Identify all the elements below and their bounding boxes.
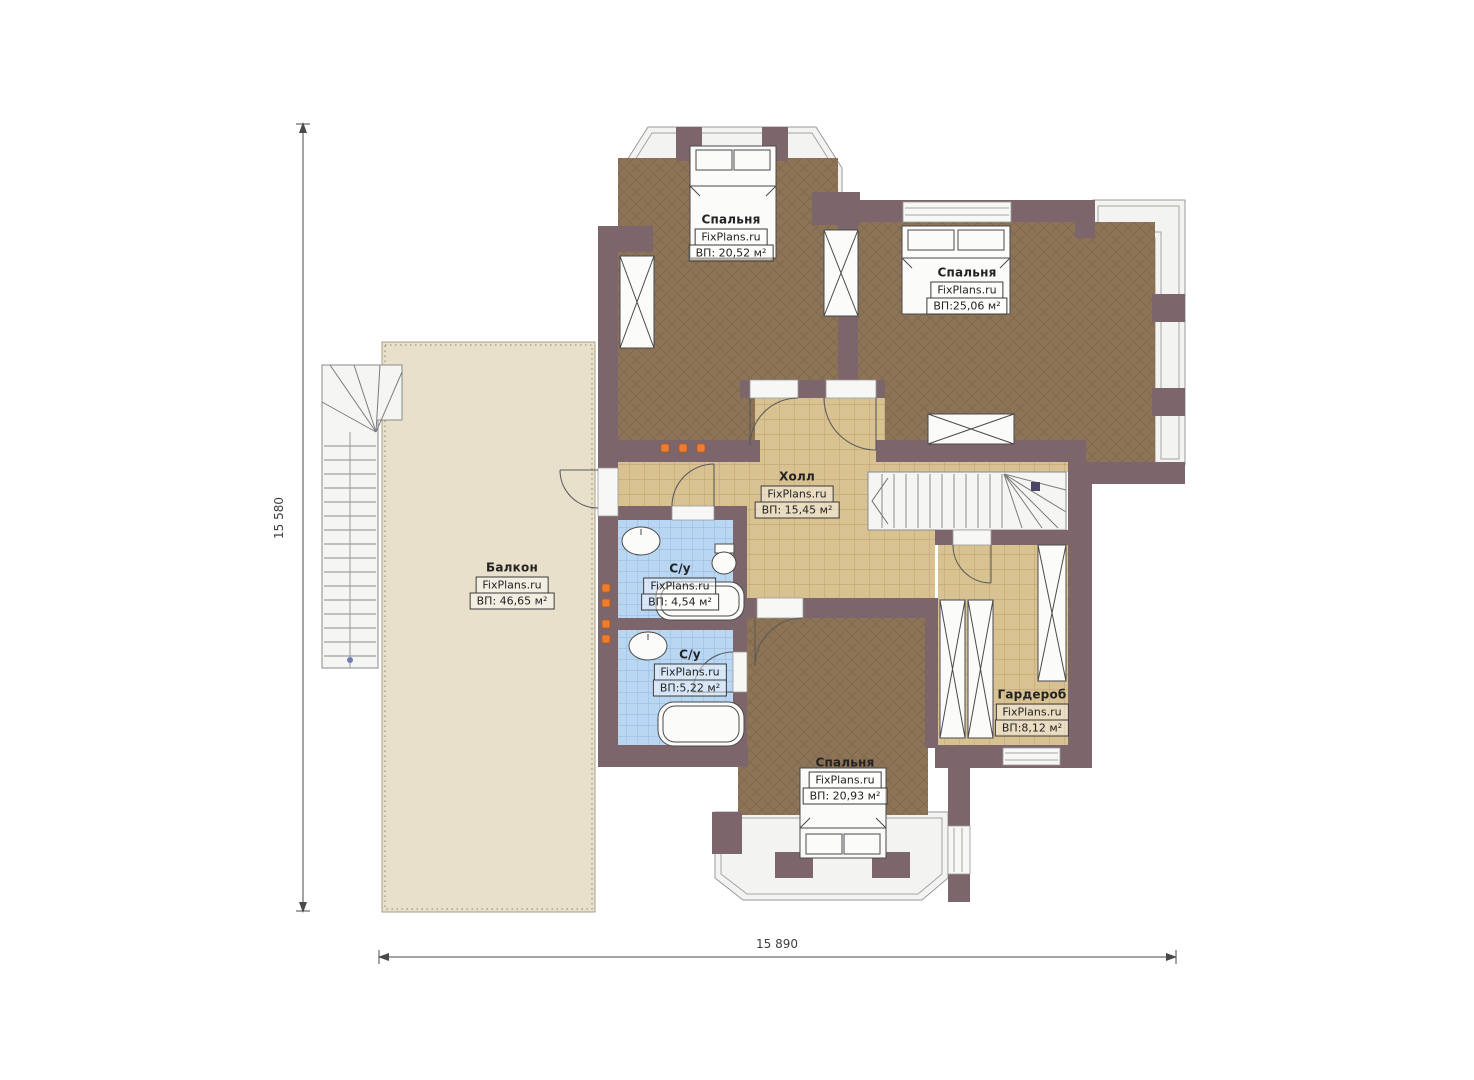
dimension-vertical [296, 122, 310, 913]
closet-wardrobe-left-2 [968, 600, 993, 738]
opening-bedroom1-door [750, 380, 798, 398]
bathtub-upper [656, 582, 744, 620]
floor-plan-canvas: Спальня FixPlans.ru ВП: 20,52 м² Спальня… [0, 0, 1474, 1080]
closet-wardrobe-left-1 [940, 600, 965, 738]
closet-bedroom1 [620, 256, 654, 348]
shaft-between-bedrooms [824, 230, 858, 316]
sink-bath-upper [622, 527, 660, 555]
balcony-area [382, 342, 595, 912]
dimension-height-label: 15 580 [272, 497, 286, 539]
floor-plan-drawing [0, 0, 1474, 1080]
stair-start-marker [347, 657, 353, 663]
window-right-lower [948, 826, 970, 874]
bed-bedroom-top-right [902, 226, 1010, 314]
window-wardrobe-bottom [1003, 748, 1060, 765]
opening-bedroom3-door [757, 598, 803, 618]
dimension-horizontal [378, 950, 1177, 964]
closet-bedroom2 [928, 414, 1014, 444]
bed-bedroom-top-left [690, 146, 776, 258]
bathtub-lower [658, 702, 744, 746]
opening-bath-lower-door [733, 652, 747, 692]
window-behind-bed2 [903, 202, 1011, 222]
opening-bath-upper-door [672, 506, 714, 520]
sink-bath-lower [629, 632, 667, 660]
toilet-bath-upper [712, 544, 736, 574]
opening-wardrobe-door [953, 530, 991, 545]
closet-wardrobe-right [1038, 545, 1066, 681]
internal-staircase [868, 472, 1066, 530]
bed-bedroom-bottom [800, 768, 886, 858]
dimension-width-label: 15 890 [756, 937, 798, 951]
opening-bedroom2-door [826, 380, 876, 398]
stair-post [1031, 482, 1040, 491]
opening-balcony-door [598, 468, 618, 516]
